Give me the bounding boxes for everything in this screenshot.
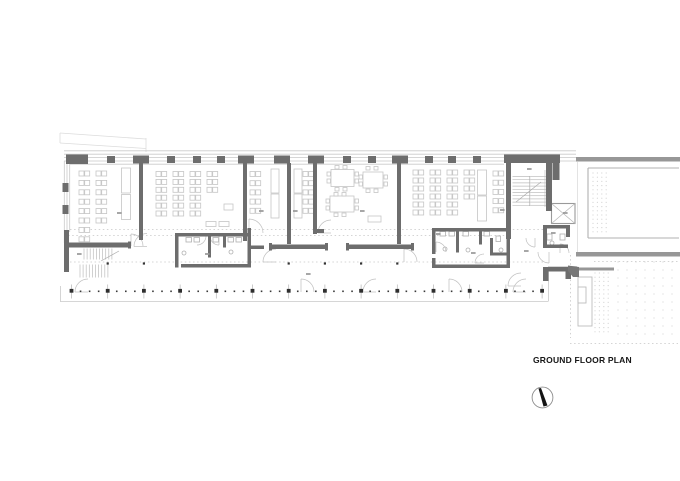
furniture-desk — [256, 181, 261, 186]
floor-texture-dot — [603, 277, 604, 278]
wall — [325, 243, 328, 251]
furniture-desk — [162, 203, 167, 208]
furniture-table — [294, 194, 302, 218]
floor-texture-dot — [597, 227, 598, 228]
floor-texture-dot — [599, 327, 600, 328]
furniture-desk — [196, 179, 201, 184]
furniture-desk — [179, 179, 184, 184]
floor-texture-dot — [608, 285, 609, 286]
floor-texture-dot — [597, 231, 598, 232]
sanitary-fixture — [236, 238, 242, 243]
floor-texture-dot — [644, 277, 645, 278]
floor-texture-dot — [617, 277, 618, 278]
door-swing-arc — [249, 219, 263, 233]
furniture-desk — [179, 195, 184, 200]
sanitary-basin — [229, 250, 233, 254]
furniture-table — [224, 204, 233, 210]
floor-texture-dot — [608, 323, 609, 324]
floor-texture-dot — [662, 277, 663, 278]
furniture-desk — [190, 211, 195, 216]
furniture-table — [355, 179, 359, 183]
furniture-desk — [436, 210, 441, 215]
wall — [432, 228, 436, 254]
floor-texture-dot — [597, 181, 598, 182]
sanitary-fixture — [186, 238, 192, 243]
wall — [107, 156, 115, 163]
furniture-desk — [156, 172, 161, 177]
furniture-desk — [309, 172, 314, 177]
furniture-table — [363, 172, 383, 188]
furniture-desk — [179, 172, 184, 177]
furniture-desk — [156, 187, 161, 192]
furniture-desk — [190, 179, 195, 184]
colonnade-dot — [279, 291, 281, 293]
furniture-desk — [419, 178, 424, 183]
wall — [274, 156, 290, 164]
room-number-mark — [205, 253, 210, 255]
furniture-desk — [309, 181, 314, 186]
floor-texture-dot — [599, 289, 600, 290]
furniture-table — [206, 222, 216, 227]
sanitary-fixture — [449, 232, 455, 237]
wall — [448, 156, 456, 163]
floor-texture-dot — [606, 198, 607, 199]
floor-texture-dot — [597, 206, 598, 207]
floor-texture-dot — [671, 285, 672, 286]
floor-texture-dot — [644, 293, 645, 294]
furniture-desk — [413, 210, 418, 215]
furniture-desk — [102, 199, 107, 204]
furniture-desk — [162, 211, 167, 216]
furniture-desk — [430, 170, 435, 175]
furniture-desk — [85, 180, 90, 185]
door-swing-arc — [436, 242, 446, 252]
door-swing-arc — [449, 279, 462, 292]
furniture-desk — [453, 178, 458, 183]
wall — [479, 232, 482, 245]
floor-texture-dot — [653, 309, 654, 310]
floor-texture-dot — [606, 189, 607, 190]
floor-texture-dot — [603, 306, 604, 307]
floor-texture-dot — [635, 333, 636, 334]
floor-texture-dot — [601, 198, 602, 199]
wall — [193, 156, 201, 163]
floor-texture-dot — [644, 269, 645, 270]
floor-texture-dot — [592, 177, 593, 178]
furniture-table — [122, 195, 131, 220]
colonnade-dot — [487, 291, 489, 293]
floor-texture-dot — [601, 172, 602, 173]
wall — [543, 245, 568, 249]
furniture-desk — [190, 203, 195, 208]
furniture-desk — [102, 218, 107, 223]
furniture-desk — [419, 194, 424, 199]
furniture-table — [326, 199, 330, 203]
sanitary-fixture — [560, 234, 565, 240]
colonnade-column — [540, 289, 544, 293]
room-number-mark — [563, 212, 568, 214]
floor-texture-dot — [626, 333, 627, 334]
floor-texture-dot — [594, 272, 595, 273]
colonnade-dot — [532, 291, 534, 293]
furniture-desk — [413, 194, 418, 199]
furniture-desk — [85, 227, 90, 232]
floor-texture-dot — [671, 309, 672, 310]
floor-texture-dot — [608, 319, 609, 320]
furniture-desk — [79, 227, 84, 232]
floor-texture-dot — [594, 331, 595, 332]
furniture-desk — [96, 199, 101, 204]
furniture-table — [271, 194, 279, 218]
floor-texture-dot — [662, 261, 663, 262]
floor-texture-dot — [606, 227, 607, 228]
sanitary-basin — [466, 248, 470, 252]
colonnade-dot — [125, 291, 127, 293]
colonnade-dot — [369, 291, 371, 293]
floor-texture-dot — [597, 185, 598, 186]
colonnade-dot — [297, 291, 299, 293]
floor-texture-dot — [603, 289, 604, 290]
wall — [64, 230, 69, 272]
floor-texture-dot — [608, 327, 609, 328]
room-number-mark — [524, 250, 529, 252]
floor-texture-dot — [597, 210, 598, 211]
wall — [139, 163, 143, 240]
sanitary-fixture — [547, 234, 552, 240]
floor-texture-dot — [653, 269, 654, 270]
door-swing-arc — [404, 249, 417, 262]
floor-texture-dot — [608, 289, 609, 290]
furniture-desk — [430, 178, 435, 183]
furniture-table — [355, 206, 359, 210]
wall — [63, 183, 69, 192]
furniture-desk — [447, 194, 452, 199]
furniture-table — [374, 189, 378, 193]
furniture-table — [326, 206, 330, 210]
furniture-desk — [430, 194, 435, 199]
corridor-column — [288, 262, 290, 264]
floor-texture-dot — [597, 219, 598, 220]
floor-texture-dot — [617, 269, 618, 270]
north-arrow-needle — [539, 388, 548, 407]
door-swing-arc — [363, 279, 376, 292]
colonnade-dot — [225, 291, 227, 293]
furniture-table — [368, 216, 381, 222]
floor-texture-dot — [644, 301, 645, 302]
colonnade-column — [178, 289, 182, 293]
furniture-table — [359, 182, 363, 186]
floor-texture-dot — [592, 185, 593, 186]
colonnade-dot — [161, 291, 163, 293]
furniture-desk — [493, 208, 498, 213]
floor-texture-dot — [592, 193, 593, 194]
floor-texture-dot — [601, 202, 602, 203]
furniture-table — [366, 189, 370, 193]
colonnade-dot — [306, 291, 308, 293]
neighbour-wall — [576, 157, 680, 162]
furniture-desk — [470, 178, 475, 183]
floor-texture-dot — [608, 277, 609, 278]
floor-texture-dot — [626, 317, 627, 318]
floor-texture-dot — [594, 285, 595, 286]
colonnade-dot — [378, 291, 380, 293]
furniture-desk — [96, 171, 101, 176]
floor-texture-dot — [603, 293, 604, 294]
furniture-desk — [196, 203, 201, 208]
wall — [473, 156, 481, 163]
colonnade-column — [70, 289, 74, 293]
sanitary-basin — [182, 251, 186, 255]
furniture-desk — [303, 199, 308, 204]
colonnade-dot — [406, 291, 408, 293]
floor-texture-dot — [597, 202, 598, 203]
furniture-desk — [96, 180, 101, 185]
furniture-desk — [256, 199, 261, 204]
furniture-table — [374, 167, 378, 171]
colonnade-dot — [424, 291, 426, 293]
floor-texture-dot — [653, 301, 654, 302]
furniture-desk — [162, 195, 167, 200]
furniture-desk — [79, 180, 84, 185]
colonnade-column — [142, 289, 146, 293]
wall — [543, 225, 570, 229]
floor-texture-dot — [608, 306, 609, 307]
floor-texture-dot — [592, 202, 593, 203]
furniture-table — [219, 222, 229, 227]
door-swing-arc — [301, 279, 314, 292]
furniture-desk — [207, 179, 212, 184]
furniture-desk — [85, 237, 90, 242]
wall — [223, 237, 226, 248]
floor-texture-dot — [608, 298, 609, 299]
furniture-desk — [413, 178, 418, 183]
furniture-desk — [413, 186, 418, 191]
furniture-desk — [499, 180, 504, 185]
wall — [175, 233, 251, 237]
colonnade-dot — [270, 291, 272, 293]
neighbour-pier-outline — [578, 287, 586, 303]
floor-texture-dot — [662, 325, 663, 326]
floor-texture-dot — [603, 302, 604, 303]
furniture-desk — [464, 194, 469, 199]
colonnade-dot — [478, 291, 480, 293]
corridor-column — [396, 262, 398, 264]
floor-texture-dot — [635, 293, 636, 294]
floor-texture-dot — [599, 285, 600, 286]
furniture-desk — [493, 180, 498, 185]
wall — [64, 243, 131, 248]
furniture-desk — [213, 172, 218, 177]
sanitary-fixture — [440, 232, 446, 237]
furniture-table — [478, 196, 487, 221]
furniture-desk — [102, 180, 107, 185]
wall — [181, 264, 251, 268]
colonnade-dot — [234, 291, 236, 293]
floor-texture-dot — [597, 189, 598, 190]
sanitary-fixture — [228, 238, 234, 243]
corridor-column — [107, 262, 109, 264]
neighbour-wall — [576, 252, 680, 257]
furniture-desk — [85, 171, 90, 176]
floor-texture-dot — [606, 214, 607, 215]
floor-texture-dot — [603, 281, 604, 282]
corridor-column — [324, 262, 326, 264]
floor-texture-dot — [597, 214, 598, 215]
floor-texture-dot — [599, 314, 600, 315]
furniture-desk — [436, 186, 441, 191]
furniture-desk — [173, 179, 178, 184]
floor-texture-dot — [606, 177, 607, 178]
colonnade-column — [251, 289, 255, 293]
furniture-desk — [102, 171, 107, 176]
floor-texture-dot — [606, 210, 607, 211]
floor-texture-dot — [608, 272, 609, 273]
room-number-mark — [436, 233, 441, 235]
wall — [411, 243, 414, 251]
furniture-desk — [447, 170, 452, 175]
wall — [546, 163, 552, 211]
colonnade-dot — [342, 291, 344, 293]
furniture-desk — [303, 190, 308, 195]
furniture-desk — [499, 171, 504, 176]
wall — [347, 245, 414, 250]
floor-texture-dot — [603, 319, 604, 320]
colonnade-dot — [315, 291, 317, 293]
colonnade-dot — [116, 291, 118, 293]
furniture-desk — [453, 170, 458, 175]
floor-texture-dot — [594, 281, 595, 282]
floor-texture-dot — [635, 277, 636, 278]
furniture-table — [335, 188, 339, 192]
furniture-desk — [173, 187, 178, 192]
floor-texture-dot — [601, 219, 602, 220]
furniture-desk — [499, 189, 504, 194]
furniture-desk — [85, 209, 90, 214]
drawing-canvas: GROUND FLOOR PLAN — [0, 0, 680, 481]
furniture-desk — [85, 199, 90, 204]
floor-texture-dot — [671, 317, 672, 318]
furniture-desk — [453, 194, 458, 199]
colonnade-column — [287, 289, 291, 293]
room-number-mark — [471, 252, 476, 254]
furniture-table — [330, 196, 354, 212]
furniture-table — [478, 170, 487, 195]
sanitary-fixture — [484, 232, 490, 237]
door-swing-arc — [508, 273, 521, 286]
furniture-desk — [79, 199, 84, 204]
furniture-desk — [464, 170, 469, 175]
floor-texture-dot — [599, 272, 600, 273]
floor-texture-dot — [644, 333, 645, 334]
floor-texture-dot — [592, 223, 593, 224]
colonnade-column — [359, 289, 363, 293]
sanitary-fixture — [496, 236, 501, 242]
floor-texture-dot — [601, 231, 602, 232]
furniture-desk — [96, 209, 101, 214]
corridor-column — [143, 262, 145, 264]
colonnade-column — [395, 289, 399, 293]
floor-texture-dot — [635, 269, 636, 270]
room-number-mark — [77, 253, 82, 255]
floor-texture-dot — [601, 206, 602, 207]
furniture-table — [334, 213, 338, 217]
floor-texture-dot — [599, 293, 600, 294]
furniture-table — [122, 168, 131, 193]
furniture-desk — [436, 202, 441, 207]
door-swing-arc — [513, 279, 526, 292]
floor-texture-dot — [606, 219, 607, 220]
furniture-desk — [102, 190, 107, 195]
floor-texture-dot — [644, 325, 645, 326]
colonnade-dot — [197, 291, 199, 293]
wall — [504, 155, 560, 164]
site-outline-line — [60, 133, 146, 139]
floor-texture-dot — [617, 317, 618, 318]
colonnade-dot — [261, 291, 263, 293]
furniture-desk — [419, 202, 424, 207]
furniture-desk — [303, 181, 308, 186]
wall — [269, 243, 272, 251]
wall — [175, 233, 179, 268]
floor-texture-dot — [644, 317, 645, 318]
floor-texture-dot — [662, 317, 663, 318]
furniture-desk — [419, 186, 424, 191]
floor-texture-dot — [603, 298, 604, 299]
furniture-desk — [413, 170, 418, 175]
colonnade-dot — [523, 291, 525, 293]
furniture-desk — [453, 186, 458, 191]
colonnade-dot — [134, 291, 136, 293]
door-swing-arc — [263, 249, 276, 262]
colonnade-dot — [496, 291, 498, 293]
room-number-mark — [306, 273, 311, 275]
floor-texture-dot — [601, 214, 602, 215]
floor-texture-dot — [626, 277, 627, 278]
floor-texture-dot — [592, 172, 593, 173]
furniture-desk — [470, 186, 475, 191]
furniture-desk — [173, 172, 178, 177]
furniture-desk — [309, 208, 314, 213]
floor-texture-dot — [599, 302, 600, 303]
floor-texture-dot — [671, 293, 672, 294]
floor-texture-dot — [662, 269, 663, 270]
floor-texture-dot — [599, 298, 600, 299]
floor-texture-dot — [594, 277, 595, 278]
furniture-desk — [96, 190, 101, 195]
furniture-desk — [256, 190, 261, 195]
colonnade-column — [504, 289, 508, 293]
furniture-desk — [79, 218, 84, 223]
floor-texture-dot — [594, 310, 595, 311]
furniture-desk — [493, 171, 498, 176]
furniture-table — [355, 172, 359, 176]
floor-texture-dot — [617, 301, 618, 302]
furniture-table — [334, 193, 338, 197]
floor-texture-dot — [617, 285, 618, 286]
floor-texture-dot — [601, 227, 602, 228]
furniture-desk — [162, 187, 167, 192]
wall — [128, 242, 131, 249]
floor-texture-dot — [635, 285, 636, 286]
door-swing-arc — [75, 279, 88, 292]
furniture-desk — [430, 210, 435, 215]
floor-texture-dot — [671, 333, 672, 334]
floor-texture-dot — [617, 261, 618, 262]
room-number-mark — [500, 209, 505, 211]
floor-texture-dot — [599, 310, 600, 311]
floor-texture-dot — [606, 193, 607, 194]
floor-texture-dot — [626, 269, 627, 270]
